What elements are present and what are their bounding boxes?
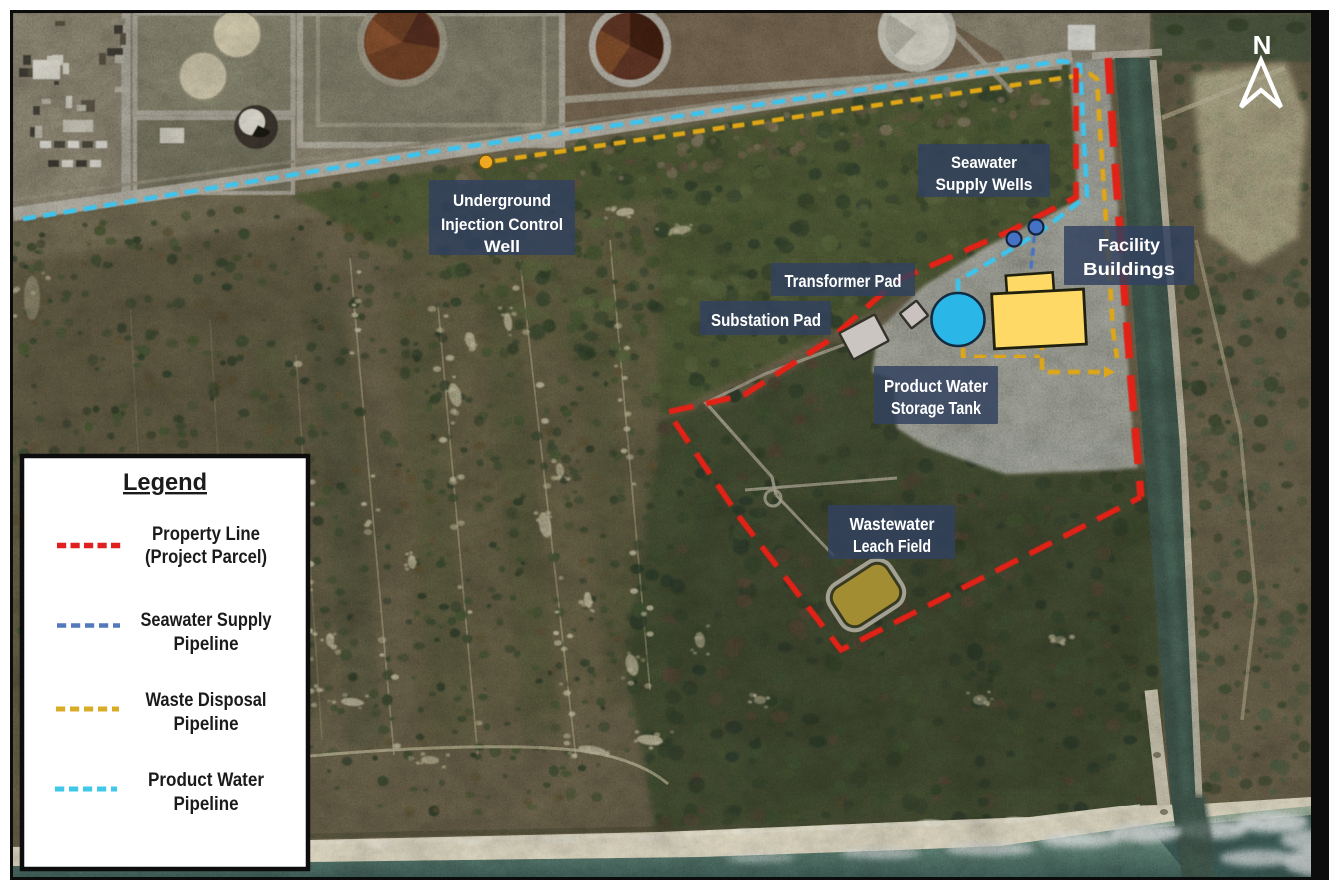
svg-text:Storage Tank: Storage Tank bbox=[891, 398, 981, 418]
svg-text:Underground: Underground bbox=[453, 191, 551, 210]
svg-text:Legend: Legend bbox=[123, 469, 207, 496]
svg-text:(Project Parcel): (Project Parcel) bbox=[145, 547, 267, 568]
svg-text:Facility: Facility bbox=[1098, 235, 1160, 255]
svg-text:Injection Control: Injection Control bbox=[441, 215, 563, 234]
svg-text:Well: Well bbox=[484, 237, 520, 256]
svg-text:Leach Field: Leach Field bbox=[853, 536, 931, 556]
svg-text:Waste Disposal: Waste Disposal bbox=[146, 690, 267, 711]
svg-text:N: N bbox=[1253, 30, 1272, 60]
svg-text:Pipeline: Pipeline bbox=[174, 714, 239, 735]
svg-text:Pipeline: Pipeline bbox=[174, 634, 239, 655]
svg-text:Wastewater: Wastewater bbox=[850, 514, 935, 534]
svg-text:Buildings: Buildings bbox=[1083, 259, 1175, 279]
svg-text:Substation Pad: Substation Pad bbox=[711, 310, 821, 330]
svg-text:Supply Wells: Supply Wells bbox=[936, 176, 1033, 194]
svg-text:Seawater Supply: Seawater Supply bbox=[141, 610, 272, 631]
svg-text:Seawater: Seawater bbox=[951, 154, 1018, 172]
svg-text:Property Line: Property Line bbox=[152, 524, 260, 545]
svg-text:Product Water: Product Water bbox=[148, 770, 265, 791]
svg-text:Pipeline: Pipeline bbox=[174, 794, 239, 815]
svg-text:Product Water: Product Water bbox=[884, 376, 988, 396]
svg-text:Transformer Pad: Transformer Pad bbox=[785, 271, 902, 291]
